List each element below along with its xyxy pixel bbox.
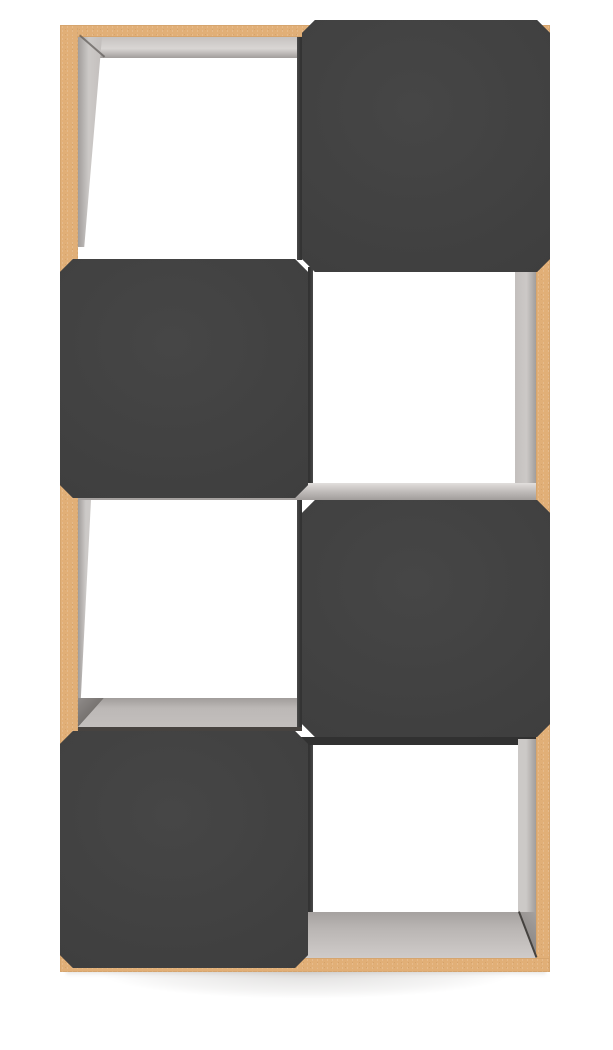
dark-panel-row2-left [60,259,308,498]
dark-panel-row4-left [60,731,308,968]
cube-right-wall-row2-right [515,267,536,483]
divider-shadow-row4 [308,745,313,912]
cube-floor-row4-right [302,912,536,958]
cube-organizer [60,25,550,972]
cube-left-wall-row1-left [78,37,102,247]
divider-shadow-row3 [297,500,302,727]
cube-floor-row3-left [78,698,302,727]
cube-right-wall-row4-right [518,739,536,912]
shelf-underside-shadow [297,737,536,745]
divider-shadow-row2 [308,267,313,483]
dark-panel-row1-right [302,20,550,272]
dark-panel-row3-right [302,500,550,737]
cube-ceiling-row1-left [78,37,302,58]
divider-shadow-row1 [297,37,302,260]
cube-left-wall-row3-left [78,500,91,698]
shelf-front-edge-shadow [78,727,302,731]
product-photo-canvas [0,0,613,1050]
